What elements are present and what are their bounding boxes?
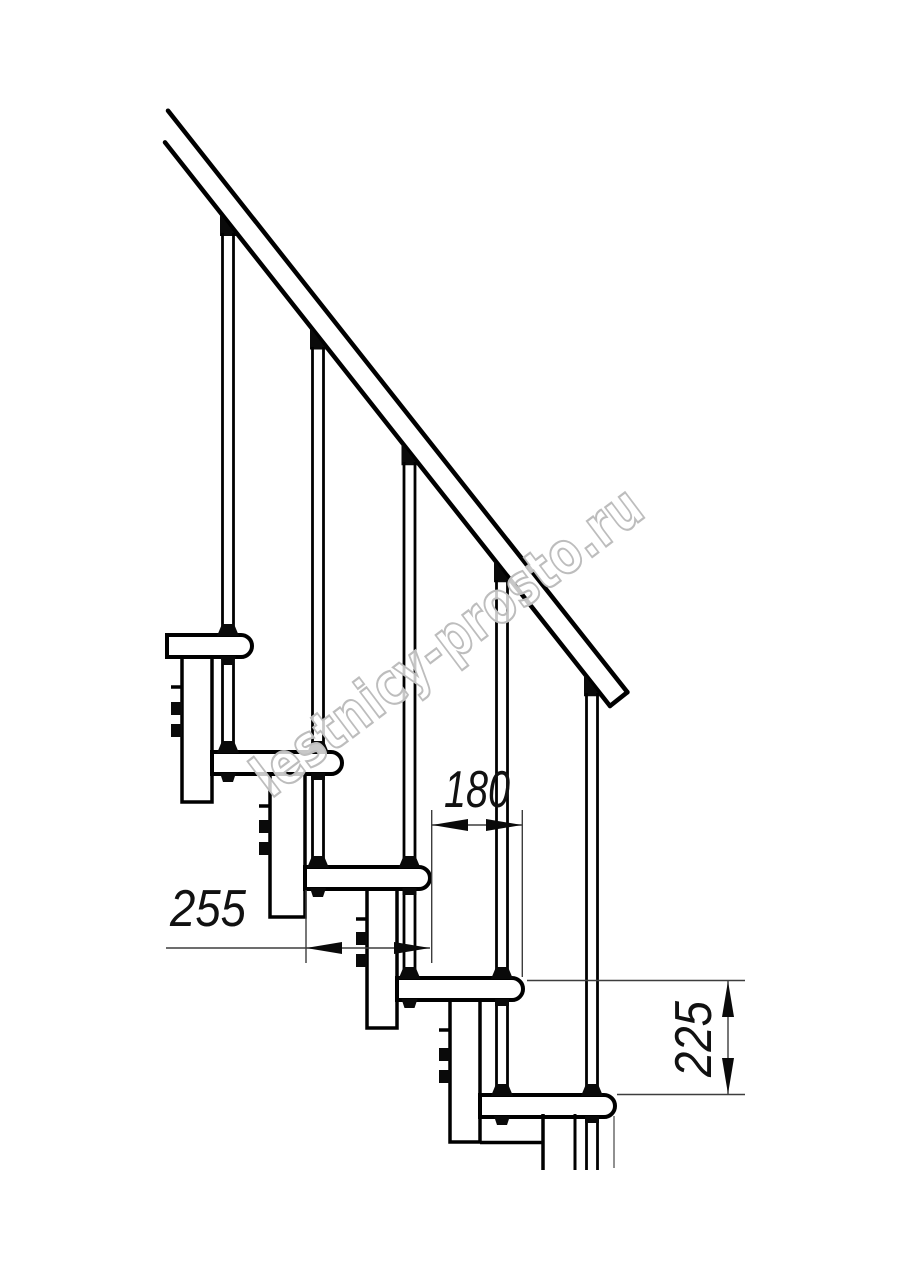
clamp-screw-icon	[171, 724, 182, 737]
rod-nut-icon	[402, 999, 418, 1008]
tread-3	[305, 867, 430, 889]
rod-fitting-icon	[491, 967, 513, 979]
rod-nut-icon	[494, 1116, 510, 1125]
tread-5	[480, 1095, 615, 1117]
rod-fitting-icon	[399, 856, 421, 868]
clamp-screw-icon	[259, 842, 270, 855]
arrow-left-icon	[306, 942, 342, 954]
rod-fitting-icon	[399, 967, 421, 979]
tread-1	[167, 635, 252, 657]
dimension-rise: 225	[527, 981, 745, 1095]
dimension-rise-value: 225	[665, 1000, 723, 1078]
support-column-1	[171, 655, 212, 802]
support-column-4	[439, 998, 480, 1142]
clamp-screw-icon	[356, 932, 367, 945]
watermark-text: lestnicy-prosto.ru	[239, 472, 657, 810]
baluster-2	[310, 328, 327, 868]
rod-collar-icon	[495, 999, 509, 1006]
arrow-left-icon	[432, 819, 468, 831]
rod-fitting-icon	[307, 856, 329, 868]
clamp-screw-icon	[356, 954, 367, 967]
clamp-screw-icon	[439, 1070, 450, 1083]
staircase-drawing: 180 255 225 lestnicy-prosto.ru	[0, 0, 914, 1280]
rod-nut-icon	[310, 888, 326, 897]
arrow-down-icon	[722, 1058, 734, 1094]
dimension-going-value: 180	[444, 761, 510, 819]
clamp-screw-icon	[259, 820, 270, 833]
rod-fitting-icon	[491, 1084, 513, 1096]
staircase-drawing-page: 180 255 225 lestnicy-prosto.ru	[0, 0, 914, 1280]
clamp-screw-icon	[171, 702, 182, 715]
arrow-right-icon	[394, 942, 430, 954]
support-column-3	[356, 887, 397, 1028]
rod-fitting-icon	[217, 624, 239, 636]
rod-fitting-icon	[581, 1084, 603, 1096]
rod-nut-icon	[220, 773, 236, 782]
arrow-up-icon	[722, 981, 734, 1017]
tread-4	[397, 978, 523, 1000]
rod-collar-icon	[585, 1116, 599, 1123]
dimension-tread-depth-value: 255	[169, 880, 247, 938]
rod-fitting-icon	[217, 741, 239, 753]
clamp-screw-icon	[439, 1048, 450, 1061]
rod-collar-icon	[403, 888, 417, 895]
arrow-right-icon	[486, 819, 522, 831]
baluster-1	[220, 214, 237, 752]
